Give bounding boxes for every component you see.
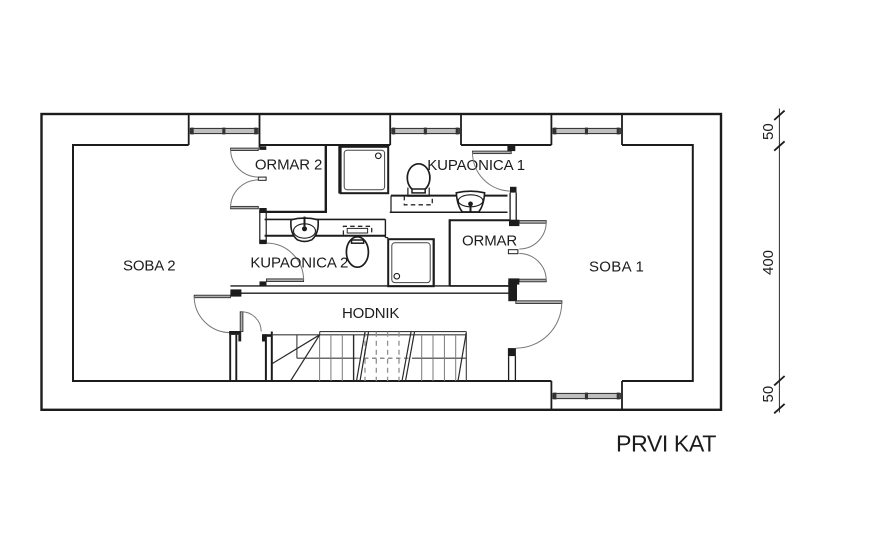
svg-text:SOBA 1: SOBA 1 [589, 259, 644, 276]
svg-text:400: 400 [760, 250, 777, 275]
svg-text:PRVI KAT: PRVI KAT [616, 431, 716, 457]
svg-text:SOBA 2: SOBA 2 [123, 258, 175, 275]
svg-text:50: 50 [760, 386, 777, 403]
svg-text:50: 50 [760, 123, 777, 140]
svg-text:ORMAR 2: ORMAR 2 [255, 156, 322, 173]
svg-text:HODNIK: HODNIK [342, 305, 399, 322]
svg-text:KUPAONICA 2: KUPAONICA 2 [250, 254, 348, 271]
svg-text:KUPAONICA 1: KUPAONICA 1 [427, 157, 525, 174]
svg-text:ORMAR: ORMAR [462, 233, 517, 250]
